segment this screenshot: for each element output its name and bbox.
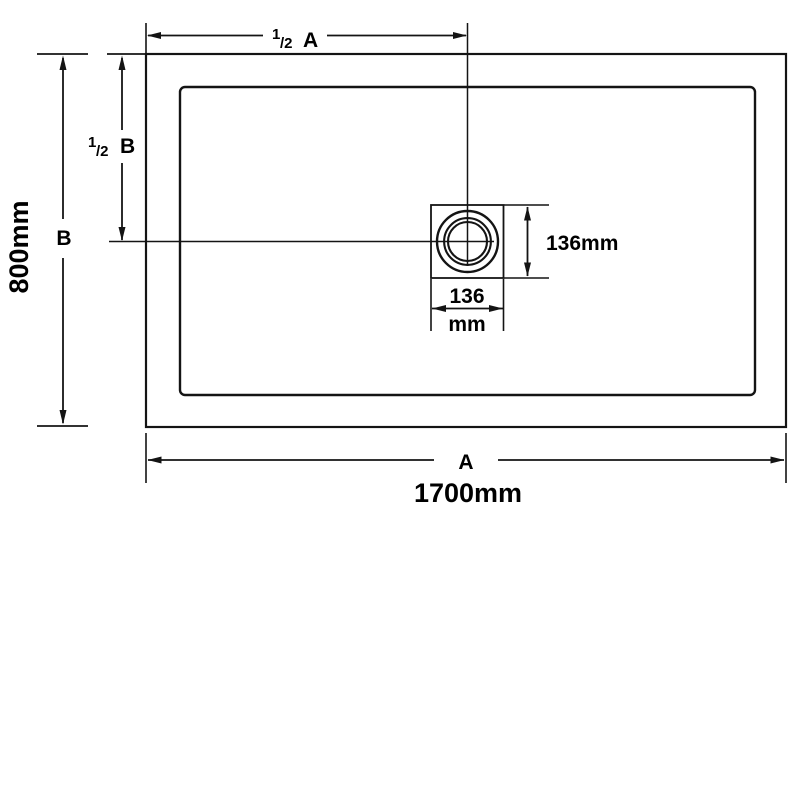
arrowhead-b-top — [60, 56, 67, 71]
arrowhead-drain-horizontal-left — [432, 305, 446, 312]
arrowhead-a-right — [771, 457, 785, 464]
label-half-b-letter: B — [120, 135, 135, 158]
shower-tray-dimension-drawing: 1 /2 A B 800mm 1 /2 B 136mm 136 mm A 170… — [0, 0, 800, 800]
diagram-canvas: 1 /2 A B 800mm 1 /2 B 136mm 136 mm A 170… — [0, 0, 800, 800]
arrowhead-half-a-right — [453, 32, 467, 39]
label-half-a-letter: A — [303, 29, 318, 52]
arrowhead-a-left — [148, 457, 162, 464]
arrowhead-b-bottom — [60, 410, 67, 425]
arrowhead-drain-vertical-bottom — [524, 263, 531, 277]
tray-outer-outline — [146, 54, 786, 427]
label-drain-width-num: 136 — [449, 285, 484, 308]
label-a-letter: A — [458, 451, 473, 474]
arrowhead-half-a-left — [147, 32, 161, 39]
label-half-a-den: /2 — [280, 35, 293, 52]
label-a-value: 1700mm — [414, 478, 522, 508]
label-drain-height: 136mm — [546, 232, 618, 255]
arrowhead-half-b-top — [119, 56, 126, 71]
arrowhead-drain-vertical-top — [524, 207, 531, 221]
arrowhead-drain-horizontal-right — [489, 305, 503, 312]
label-b-value: 800mm — [4, 200, 34, 293]
label-b-letter: B — [56, 227, 71, 250]
label-drain-width-unit: mm — [448, 313, 485, 336]
arrowhead-half-b-bottom — [119, 227, 126, 241]
label-half-b-den: /2 — [96, 143, 109, 160]
